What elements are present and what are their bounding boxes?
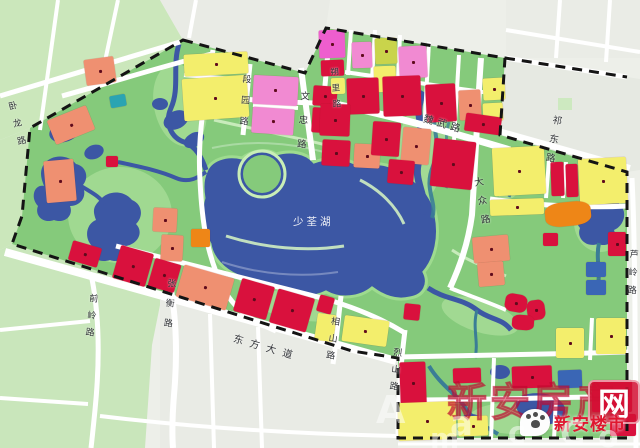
planning-map: 少荃湖 卧龙路前岭路张衡路东方大道段园路文忠路朔里路魏武路大众路祁东路相山路烈山… (0, 0, 640, 448)
planning-boundary-dashed (12, 28, 627, 438)
boundary-layer (0, 0, 640, 448)
boundary-spur-dashed (505, 58, 627, 77)
